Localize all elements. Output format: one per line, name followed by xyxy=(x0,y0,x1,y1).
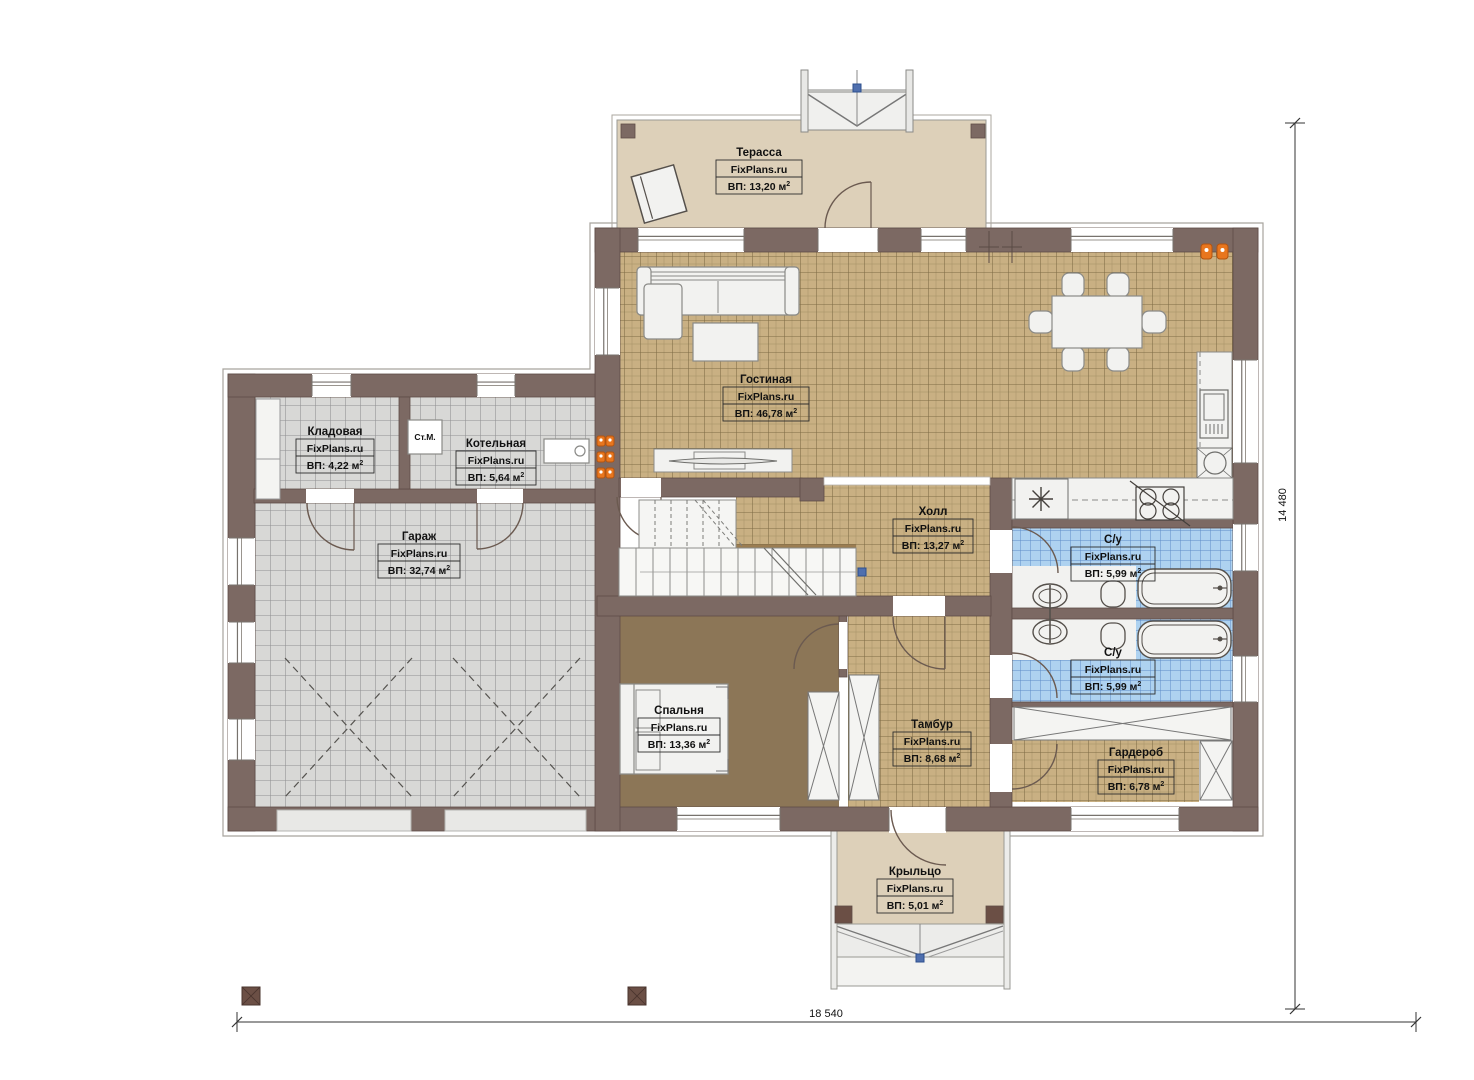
svg-text:FixPlans.ru: FixPlans.ru xyxy=(391,548,448,560)
svg-text:FixPlans.ru: FixPlans.ru xyxy=(651,722,708,734)
svg-text:Спальня: Спальня xyxy=(654,705,704,717)
svg-text:14 480: 14 480 xyxy=(1277,488,1289,522)
svg-text:FixPlans.ru: FixPlans.ru xyxy=(468,455,525,467)
svg-text:Терасса: Терасса xyxy=(736,147,782,159)
svg-text:18 540: 18 540 xyxy=(809,1008,843,1020)
svg-text:ВП: 6,78 м2: ВП: 6,78 м2 xyxy=(1108,781,1165,793)
svg-text:Тамбур: Тамбур xyxy=(911,719,953,731)
svg-text:FixPlans.ru: FixPlans.ru xyxy=(1085,664,1142,676)
svg-text:ВП: 4,22 м2: ВП: 4,22 м2 xyxy=(307,460,364,472)
svg-text:ВП: 5,99 м2: ВП: 5,99 м2 xyxy=(1085,681,1142,693)
svg-text:ВП: 13,20 м2: ВП: 13,20 м2 xyxy=(728,181,791,193)
svg-text:Кладовая: Кладовая xyxy=(307,426,362,438)
svg-text:Гараж: Гараж xyxy=(402,531,437,543)
svg-text:ВП: 13,36 м2: ВП: 13,36 м2 xyxy=(648,739,711,751)
svg-text:ВП: 5,01 м2: ВП: 5,01 м2 xyxy=(887,900,944,912)
svg-text:С/у: С/у xyxy=(1104,647,1123,659)
svg-text:FixPlans.ru: FixPlans.ru xyxy=(1085,551,1142,563)
svg-text:FixPlans.ru: FixPlans.ru xyxy=(887,883,944,895)
svg-text:FixPlans.ru: FixPlans.ru xyxy=(1108,764,1165,776)
svg-text:Холл: Холл xyxy=(919,506,948,518)
svg-text:ВП: 5,64 м2: ВП: 5,64 м2 xyxy=(468,472,525,484)
svg-text:ВП: 32,74 м2: ВП: 32,74 м2 xyxy=(388,565,451,577)
svg-text:Ст.М.: Ст.М. xyxy=(414,432,435,442)
svg-text:Крыльцо: Крыльцо xyxy=(889,866,941,878)
svg-text:Гостиная: Гостиная xyxy=(740,374,792,386)
svg-text:FixPlans.ru: FixPlans.ru xyxy=(905,523,962,535)
svg-text:ВП: 46,78 м2: ВП: 46,78 м2 xyxy=(735,408,798,420)
svg-text:ВП: 5,99 м2: ВП: 5,99 м2 xyxy=(1085,568,1142,580)
svg-text:FixPlans.ru: FixPlans.ru xyxy=(731,164,788,176)
svg-text:Котельная: Котельная xyxy=(466,438,526,450)
svg-text:FixPlans.ru: FixPlans.ru xyxy=(904,736,961,748)
svg-text:FixPlans.ru: FixPlans.ru xyxy=(738,391,795,403)
svg-text:С/у: С/у xyxy=(1104,534,1123,546)
svg-text:ВП: 13,27 м2: ВП: 13,27 м2 xyxy=(902,540,965,552)
svg-text:Гардероб: Гардероб xyxy=(1109,747,1163,759)
svg-text:FixPlans.ru: FixPlans.ru xyxy=(307,443,364,455)
svg-text:ВП: 8,68 м2: ВП: 8,68 м2 xyxy=(904,753,961,765)
